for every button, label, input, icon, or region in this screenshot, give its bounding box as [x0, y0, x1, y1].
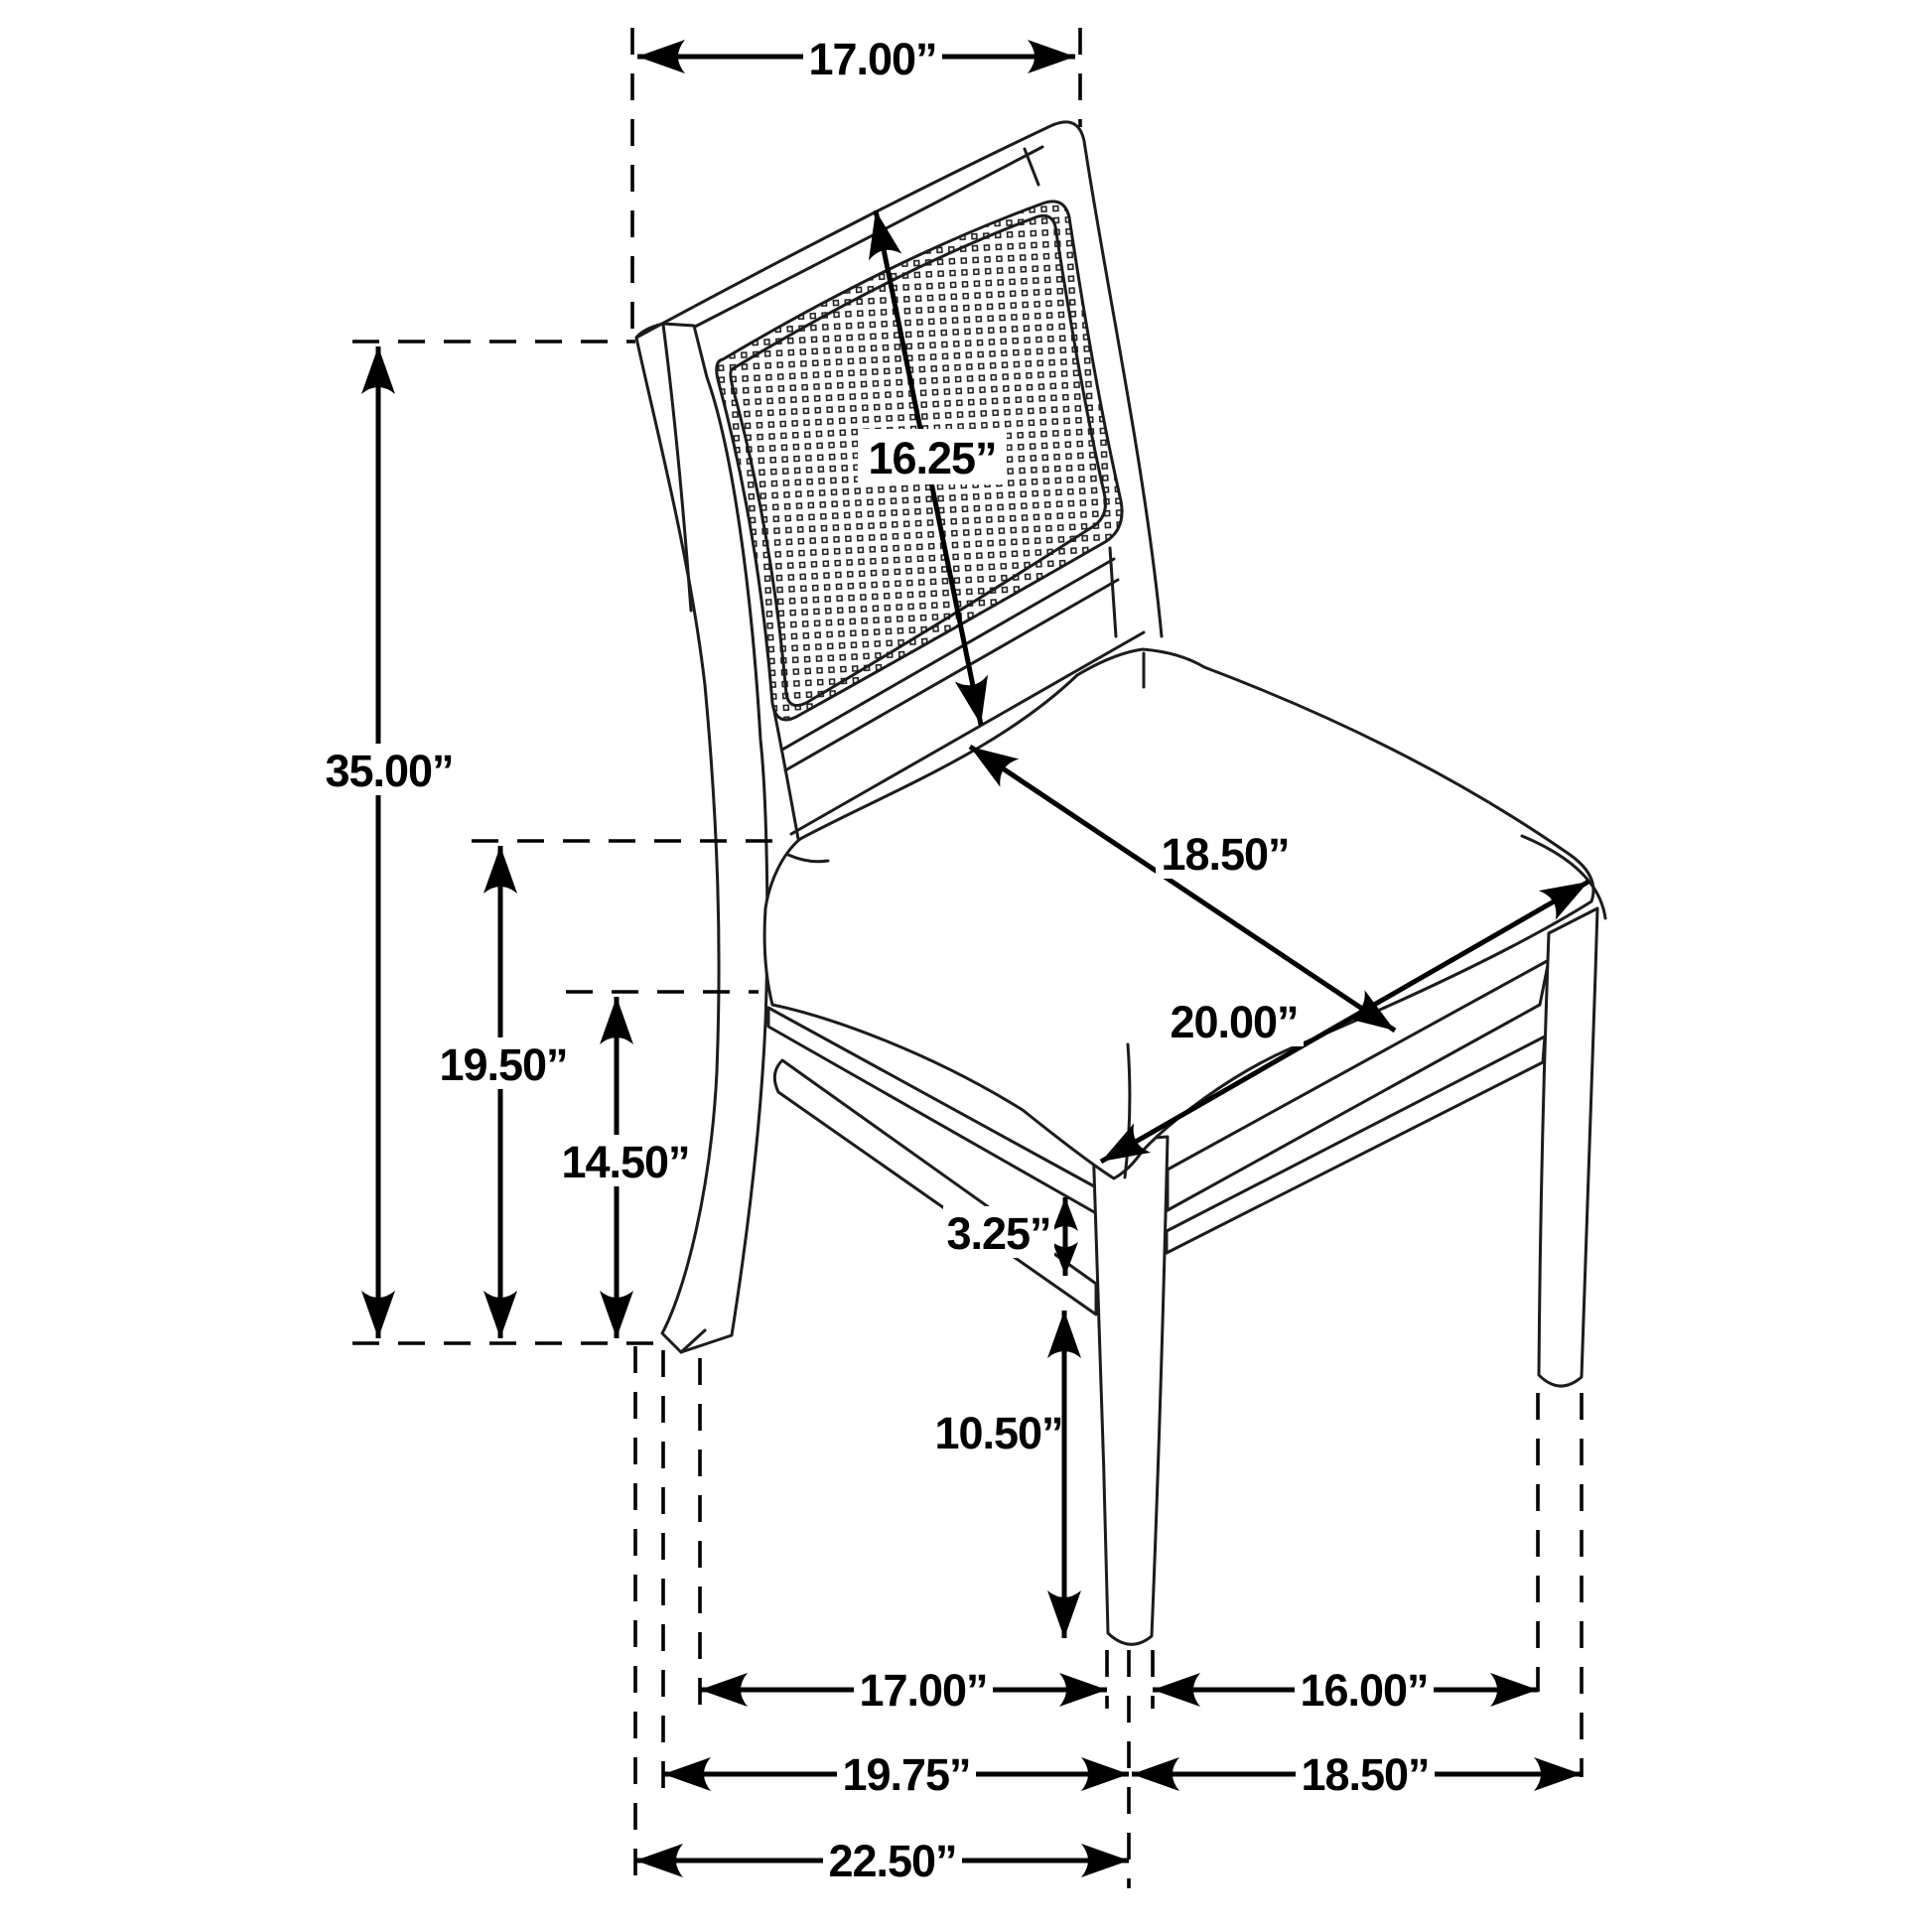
svg-text:19.75”: 19.75” [842, 1749, 970, 1800]
svg-text:3.25”: 3.25” [946, 1208, 1050, 1259]
svg-text:18.50”: 18.50” [1161, 829, 1289, 880]
svg-text:17.00”: 17.00” [859, 1665, 987, 1716]
svg-text:22.50”: 22.50” [828, 1836, 956, 1886]
svg-text:10.50”: 10.50” [934, 1408, 1062, 1458]
svg-text:14.50”: 14.50” [561, 1137, 689, 1187]
svg-text:19.50”: 19.50” [439, 1039, 567, 1090]
svg-text:20.00”: 20.00” [1170, 997, 1298, 1047]
svg-text:16.00”: 16.00” [1300, 1665, 1428, 1716]
svg-text:16.25”: 16.25” [868, 433, 996, 483]
svg-text:17.00”: 17.00” [808, 34, 936, 84]
svg-text:35.00”: 35.00” [325, 746, 453, 796]
svg-text:18.50”: 18.50” [1301, 1749, 1429, 1800]
